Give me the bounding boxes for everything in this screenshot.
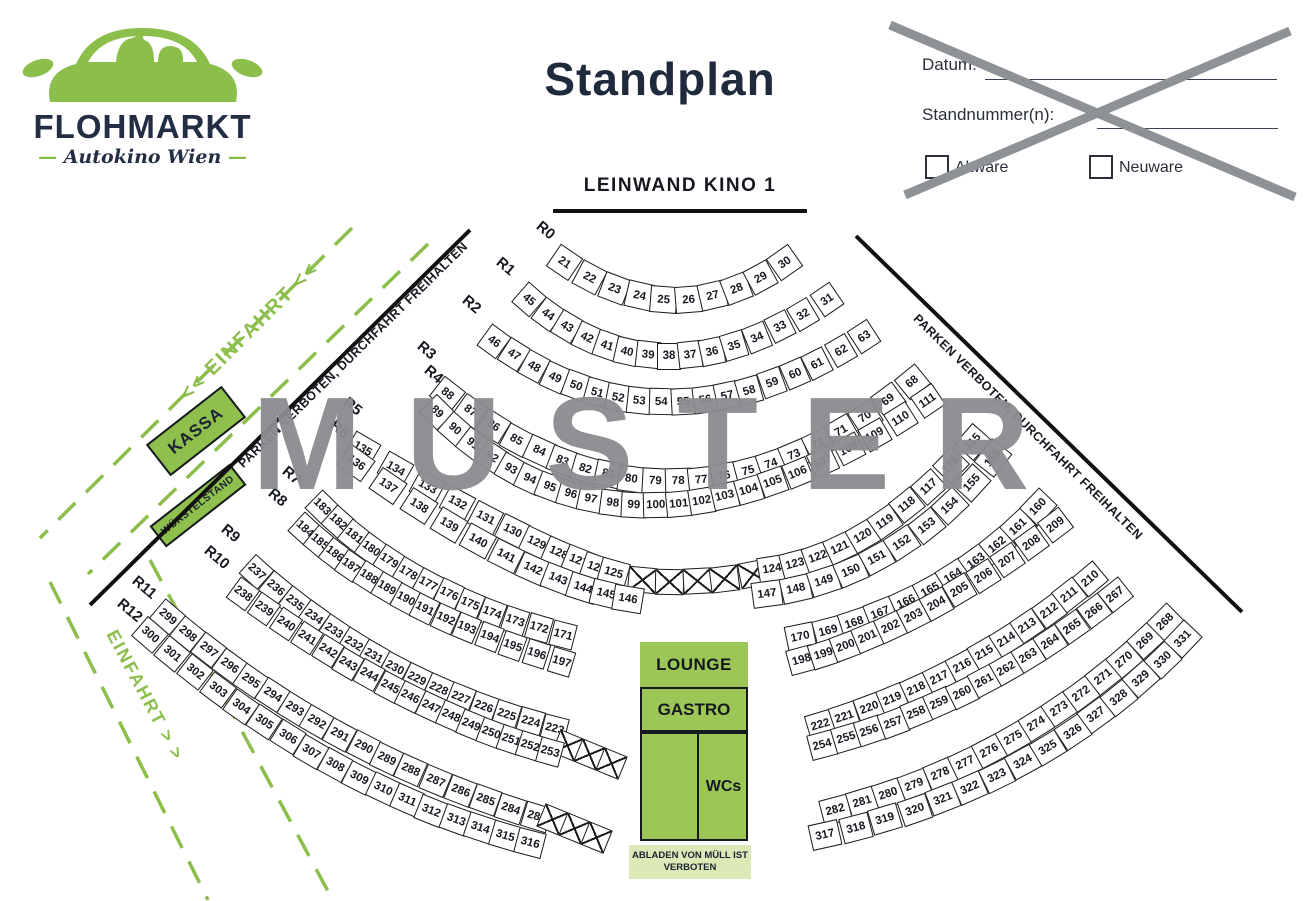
muster-watermark: MUSTER (252, 368, 1073, 519)
blocked-cell (682, 567, 712, 595)
blocked-cell (709, 564, 741, 593)
blocked-cell (655, 568, 684, 595)
stand-cell-146: 146 (611, 584, 645, 615)
